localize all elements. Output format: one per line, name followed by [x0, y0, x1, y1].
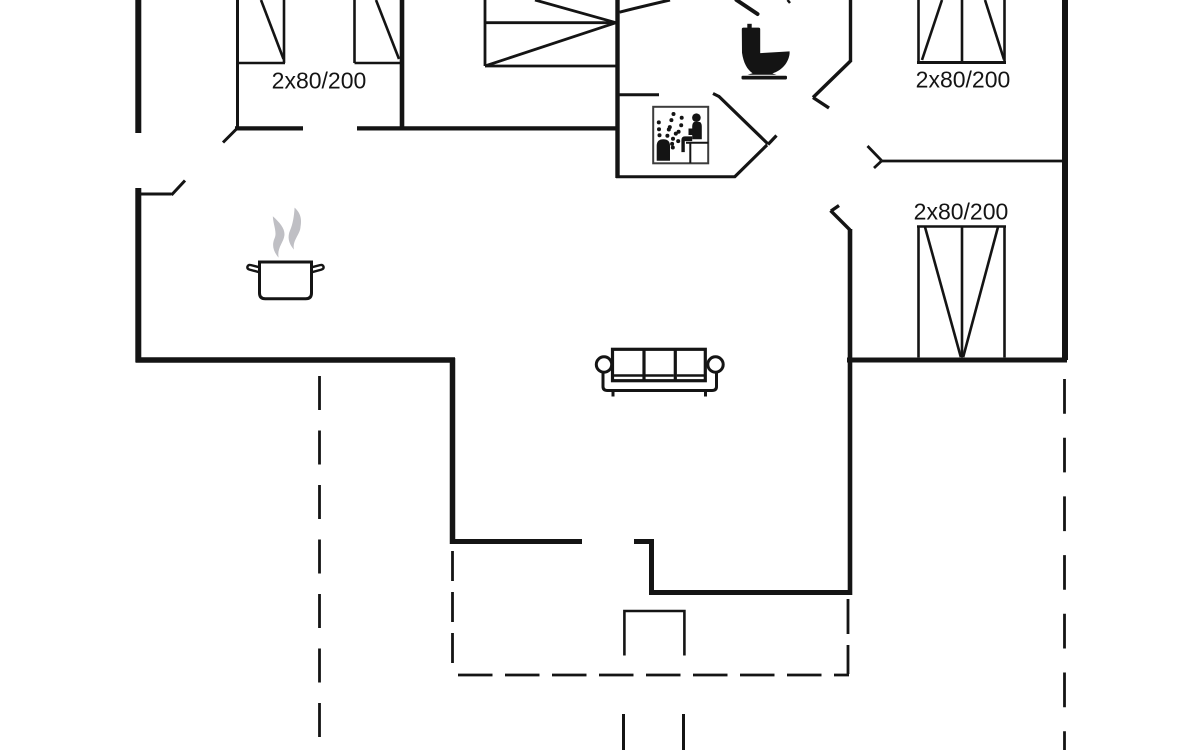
svg-text:2x80/200: 2x80/200	[914, 199, 1009, 225]
svg-text:2x80/200: 2x80/200	[916, 67, 1011, 93]
svg-text:2x80/200: 2x80/200	[272, 68, 367, 94]
